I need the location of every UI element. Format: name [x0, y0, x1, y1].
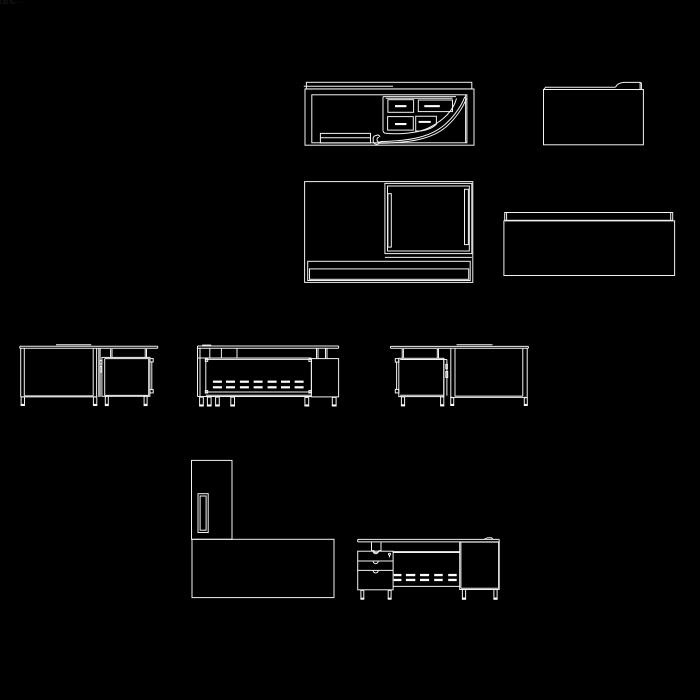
svg-text:U|X·‰··· ··: U|X·‰··· ·· — [0, 0, 25, 6]
